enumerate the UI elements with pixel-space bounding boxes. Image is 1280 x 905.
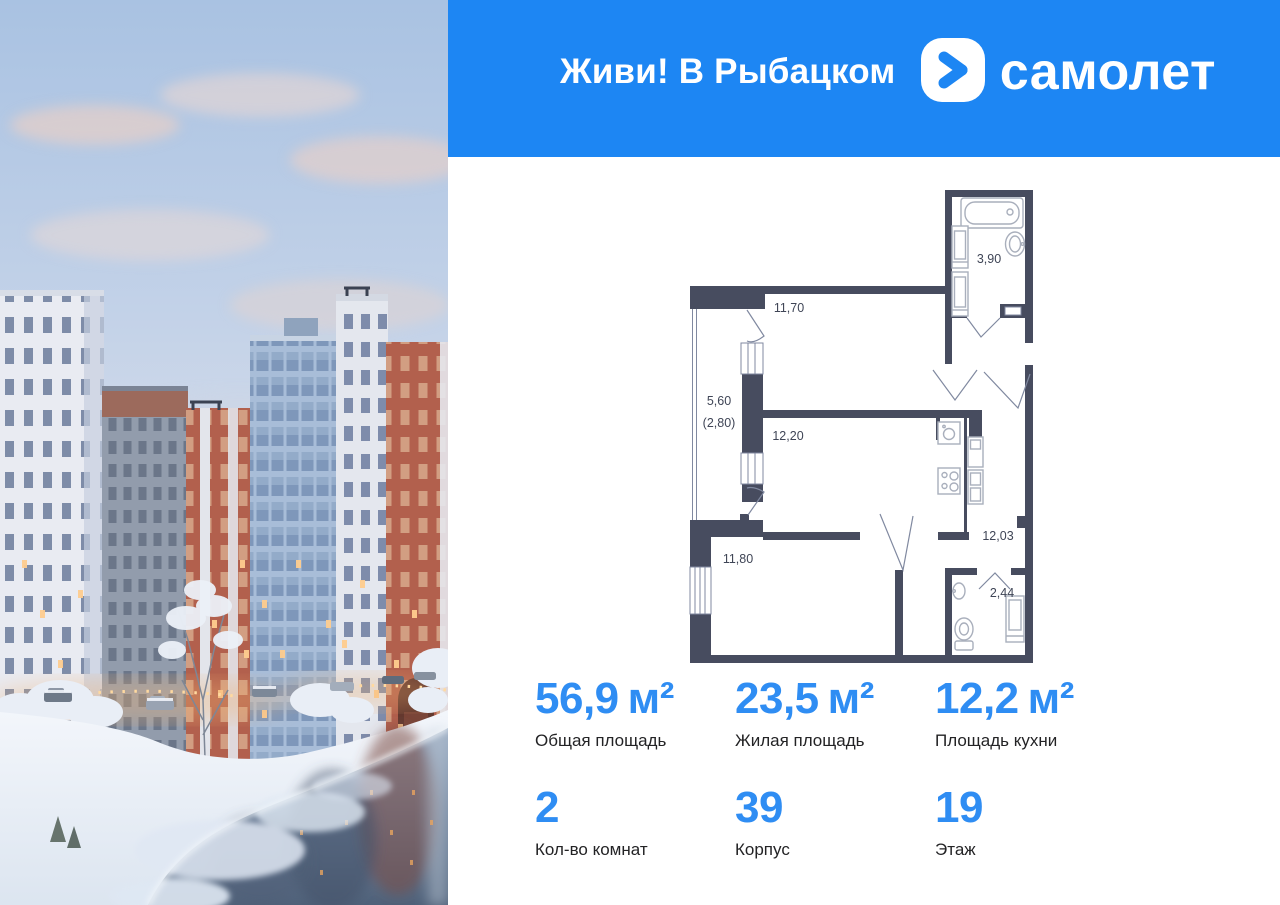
floor-plan: 3,90 11,70 5,60 (2,80) 12,20 11,80 12,03… bbox=[678, 184, 1038, 674]
bathroom-sink-icon bbox=[1006, 232, 1025, 256]
wc-washing-machine-icon bbox=[1006, 596, 1024, 642]
header-bar: Живи! В Рыбацком самолет bbox=[448, 0, 1280, 157]
stove-icon bbox=[938, 468, 960, 494]
toilet-icon bbox=[955, 618, 973, 650]
room-area-hallway: 12,03 bbox=[982, 529, 1013, 543]
room-area-room-3: 11,80 bbox=[723, 552, 753, 566]
stat-living-area: 23,5м² Жилая площадь bbox=[735, 676, 935, 751]
stat-rooms-count: 2 Кол-во комнат bbox=[535, 785, 735, 860]
bathtub-icon bbox=[961, 198, 1023, 228]
brand-name: самолет bbox=[1000, 40, 1216, 104]
project-title: Живи! В Рыбацком bbox=[560, 52, 895, 92]
door-swings bbox=[747, 310, 1030, 589]
stat-kitchen-area: 12,2м² Площадь кухни bbox=[935, 676, 1135, 751]
room-area-room-1: 11,70 bbox=[774, 301, 804, 315]
brand-logo: самолет bbox=[921, 40, 1216, 104]
room-area-balcony-reduced: (2,80) bbox=[703, 416, 736, 430]
room-area-room-2: 12,20 bbox=[772, 429, 803, 443]
wc-sink-icon bbox=[953, 583, 965, 599]
building-photo-art bbox=[0, 0, 448, 905]
kitchen-sink-icon bbox=[938, 422, 960, 444]
apartment-stats: 56,9м² Общая площадь 23,5м² Жилая площад… bbox=[535, 676, 1135, 860]
room-area-balcony: 5,60 bbox=[707, 394, 731, 408]
room-area-wc: 2,44 bbox=[990, 586, 1014, 600]
listing-card: Живи! В Рыбацком самолет bbox=[0, 0, 1280, 905]
washing-machine-icon bbox=[952, 226, 968, 316]
stat-floor-number: 19 Этаж bbox=[935, 785, 1135, 860]
stat-building-number: 39 Корпус bbox=[735, 785, 935, 860]
samolet-logo-icon bbox=[921, 38, 985, 107]
stat-total-area: 56,9м² Общая площадь bbox=[535, 676, 735, 751]
building-photo bbox=[0, 0, 448, 905]
fridge-icon bbox=[968, 437, 983, 504]
room-area-bathroom: 3,90 bbox=[977, 252, 1001, 266]
